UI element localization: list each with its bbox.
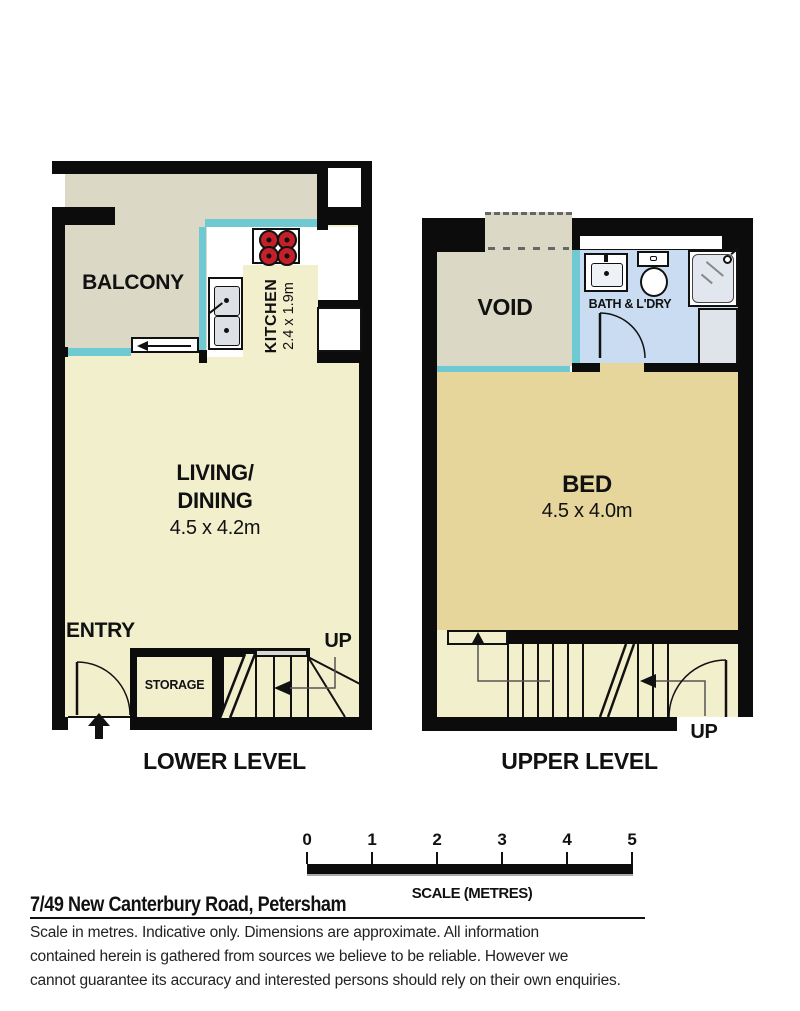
entry-arrow-stem bbox=[95, 726, 103, 739]
duct-wall-bar bbox=[320, 207, 372, 225]
kitchen-bench bbox=[317, 307, 362, 352]
scale-tick bbox=[631, 852, 633, 864]
upper-stairs bbox=[437, 628, 738, 718]
upper-right-wall bbox=[738, 218, 753, 717]
entry-arrow-icon bbox=[88, 713, 110, 726]
stairs-door-arc bbox=[669, 660, 726, 717]
lower-left-wall bbox=[52, 161, 65, 730]
storage-left-wall bbox=[130, 648, 137, 717]
toilet-tank-icon bbox=[637, 251, 669, 267]
shower-icon bbox=[688, 250, 738, 307]
slide-arrow-line bbox=[147, 345, 191, 347]
kitchen-window bbox=[205, 219, 317, 227]
storage-label: STORAGE bbox=[137, 676, 212, 694]
stairs-path-line bbox=[478, 645, 550, 681]
address: 7/49 New Canterbury Road, Petersham bbox=[30, 893, 374, 917]
bath-bulkhead bbox=[580, 236, 722, 250]
void-open-dashes bbox=[488, 247, 569, 250]
balcony-sill-stub-left bbox=[55, 347, 68, 357]
kitchen-label: KITCHEN bbox=[263, 279, 281, 354]
sink-drain bbox=[224, 298, 229, 303]
floorplan-page: BALCONY KITCHEN 2.4 bbox=[0, 0, 800, 1011]
scale-tick-label: 0 bbox=[297, 831, 317, 849]
toilet-button bbox=[650, 256, 657, 261]
vanity-drain bbox=[604, 271, 609, 276]
scale-bar-rule bbox=[307, 864, 633, 876]
balcony-label: BALCONY bbox=[70, 271, 196, 295]
living-label-line1: LIVING/ bbox=[115, 461, 315, 485]
void-side-window bbox=[572, 250, 580, 366]
storage-right-wall bbox=[212, 648, 224, 717]
bed-label: BED bbox=[487, 472, 687, 498]
balcony-sliding-door bbox=[131, 337, 199, 353]
stairs-arrow-left-icon bbox=[274, 681, 290, 695]
kitchen-label-group: KITCHEN 2.4 x 1.9m bbox=[260, 266, 300, 366]
vanity-tap bbox=[604, 254, 608, 262]
upper-up-label: UP bbox=[682, 721, 726, 743]
balcony-strip-above-kitchen bbox=[207, 174, 317, 219]
living-label-line2: DINING bbox=[115, 489, 315, 513]
kitchen-sink-icon bbox=[208, 277, 243, 350]
scale-tick-label: 1 bbox=[362, 831, 382, 849]
kitchen-right-wall-mid bbox=[358, 225, 372, 307]
sink-drain bbox=[224, 328, 229, 333]
disclaimer-line: contained herein is gathered from source… bbox=[30, 948, 770, 968]
balcony-open-edge bbox=[52, 174, 65, 207]
stairs-path-line bbox=[290, 657, 335, 688]
balcony-floor bbox=[65, 174, 207, 348]
bench-bottom-wall bbox=[317, 352, 372, 363]
slide-arrow-head-icon bbox=[137, 341, 148, 351]
living-dims: 4.5 x 4.2m bbox=[115, 517, 315, 539]
scale-tick bbox=[566, 852, 568, 864]
toilet-bowl-icon bbox=[640, 267, 668, 297]
void-open-strip bbox=[485, 212, 572, 252]
bath-label: BATH & L'DRY bbox=[585, 297, 675, 311]
balcony-sill-stub-right bbox=[199, 350, 207, 363]
laundry-space bbox=[698, 308, 738, 366]
scale-tick-label: 5 bbox=[622, 831, 642, 849]
shower-head-icon bbox=[723, 255, 732, 264]
disclaimer-line: Scale in metres. Indicative only. Dimens… bbox=[30, 924, 770, 944]
disclaimer-line: cannot guarantee its accuracy and intere… bbox=[30, 972, 770, 992]
lower-level-caption: LOWER LEVEL bbox=[92, 748, 357, 774]
stairs-arrow-up-icon bbox=[471, 632, 485, 645]
lower-stairs bbox=[224, 648, 372, 718]
stove-burner bbox=[277, 246, 297, 266]
stove-icon bbox=[252, 228, 300, 264]
scale-tick-label: 4 bbox=[557, 831, 577, 849]
lower-up-label: UP bbox=[316, 630, 360, 652]
void-label: VOID bbox=[440, 295, 570, 319]
footer-divider bbox=[30, 917, 645, 919]
scale-bar-label: SCALE (METRES) bbox=[402, 884, 542, 902]
scale-tick-label: 3 bbox=[492, 831, 512, 849]
entry-door-arc bbox=[74, 660, 132, 718]
vanity-sink-icon bbox=[584, 253, 628, 292]
kitchen-recess-right bbox=[318, 265, 358, 300]
scale-tick bbox=[501, 852, 503, 864]
scale-tick-label: 2 bbox=[427, 831, 447, 849]
kitchen-side-window bbox=[199, 227, 206, 357]
stove-burner bbox=[259, 246, 279, 266]
scale-tick bbox=[371, 852, 373, 864]
bed-dims: 4.5 x 4.0m bbox=[487, 500, 687, 522]
balcony-window-sill bbox=[68, 348, 131, 356]
bath-door-arc bbox=[596, 311, 648, 361]
scale-tick bbox=[306, 852, 308, 864]
upper-bottom-wall bbox=[422, 717, 677, 731]
upper-level-caption: UPPER LEVEL bbox=[447, 748, 712, 774]
entry-label: ENTRY bbox=[66, 619, 156, 643]
scale-tick bbox=[436, 852, 438, 864]
balcony-wall-stub bbox=[52, 207, 115, 225]
stairs-arrow-left-icon bbox=[640, 674, 656, 688]
stairs-path-line bbox=[656, 681, 705, 716]
duct-recess bbox=[328, 168, 361, 207]
kitchen-dims: 2.4 x 1.9m bbox=[281, 282, 297, 350]
bench-top-wall bbox=[318, 300, 358, 307]
upper-left-wall bbox=[422, 218, 437, 731]
